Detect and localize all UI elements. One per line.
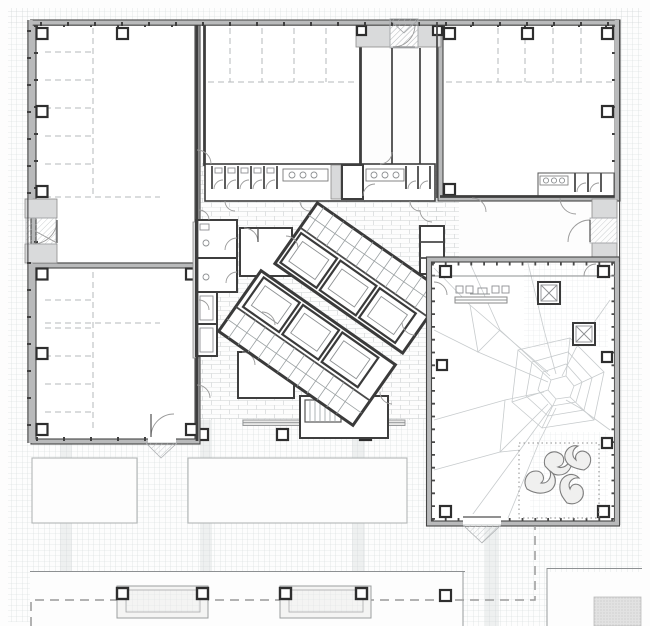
hall-bottom-left xyxy=(31,263,200,458)
column xyxy=(37,186,48,197)
shaft xyxy=(196,292,217,324)
column xyxy=(602,28,613,39)
service-room xyxy=(342,165,363,199)
bench-left xyxy=(117,586,208,618)
column xyxy=(37,28,48,39)
column xyxy=(440,506,451,517)
gallery-wing xyxy=(427,257,620,543)
column xyxy=(602,438,612,448)
entrance-pier xyxy=(592,199,617,218)
skylight-square xyxy=(538,282,560,304)
column xyxy=(440,266,451,277)
column xyxy=(522,28,533,39)
canopy-left xyxy=(32,458,137,523)
column xyxy=(598,506,609,517)
hall-top-center xyxy=(203,22,362,166)
east-facade xyxy=(617,20,619,525)
column xyxy=(598,266,609,277)
shaft xyxy=(196,324,217,356)
plaza-canopies xyxy=(32,458,407,523)
east-entrance xyxy=(568,199,617,262)
column xyxy=(444,184,455,195)
column xyxy=(357,26,366,35)
skylight-square xyxy=(573,323,595,345)
planting-bed xyxy=(594,597,641,626)
bench-row xyxy=(117,586,641,626)
column xyxy=(37,269,48,280)
wc-room xyxy=(196,220,237,258)
column xyxy=(444,28,455,39)
floorplan-drawing xyxy=(0,0,650,626)
toilets-right-bank xyxy=(538,173,614,197)
column xyxy=(440,590,451,601)
column xyxy=(602,106,613,117)
entrance-pier xyxy=(25,244,57,263)
column xyxy=(37,424,48,435)
column xyxy=(437,360,447,370)
column xyxy=(602,352,612,362)
wc-room xyxy=(196,258,237,292)
duct-shaft xyxy=(331,165,341,199)
west-entrance xyxy=(25,199,57,263)
entrance-pier xyxy=(25,199,57,218)
column xyxy=(186,424,197,435)
entrance-mat xyxy=(590,218,617,243)
column xyxy=(37,348,48,359)
column xyxy=(117,28,128,39)
plaza-paving-right xyxy=(429,525,642,572)
column xyxy=(277,429,288,440)
column xyxy=(37,106,48,117)
floorplan-canvas xyxy=(0,0,650,626)
hall-top-right xyxy=(438,20,620,201)
bench-right xyxy=(280,586,371,618)
canopy-center xyxy=(188,458,407,523)
